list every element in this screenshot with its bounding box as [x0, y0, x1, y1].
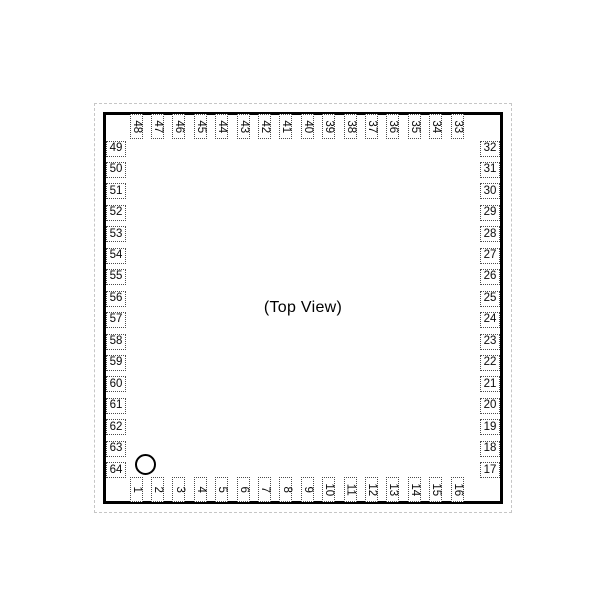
pin-number: 34: [430, 120, 442, 133]
pin-number: 32: [484, 143, 497, 155]
pin-box-10: 10: [322, 477, 335, 502]
pin-number: 52: [110, 207, 123, 219]
pin-box-61: 61: [106, 398, 126, 414]
pin-number: 36: [387, 120, 399, 133]
pin-box-4: 4: [194, 477, 207, 502]
pin-number: 35: [408, 120, 420, 133]
pin-box-35: 35: [408, 114, 421, 139]
pin-number: 15: [430, 483, 442, 496]
pin-number: 23: [484, 336, 497, 348]
pin-box-5: 5: [215, 477, 228, 502]
pin-number: 41: [280, 120, 292, 133]
pin-box-17: 17: [480, 462, 500, 478]
pin-box-30: 30: [480, 183, 500, 199]
pin-box-16: 16: [451, 477, 464, 502]
pin-number: 37: [366, 120, 378, 133]
pin-box-1: 1: [130, 477, 143, 502]
pin-number: 56: [110, 293, 123, 305]
pin-number: 24: [484, 314, 497, 326]
pin-box-7: 7: [258, 477, 271, 502]
pin-number: 9: [301, 486, 313, 492]
pin-box-50: 50: [106, 162, 126, 178]
pin-number: 17: [484, 465, 497, 477]
pin-box-25: 25: [480, 291, 500, 307]
pin-box-27: 27: [480, 248, 500, 264]
pin-number: 39: [323, 120, 335, 133]
pin-number: 8: [280, 486, 292, 492]
pin-number: 48: [130, 120, 142, 133]
pin-box-51: 51: [106, 183, 126, 199]
pin-number: 42: [259, 120, 271, 133]
pin-number: 61: [110, 400, 123, 412]
pin-number: 47: [152, 120, 164, 133]
pin-number: 26: [484, 271, 497, 283]
pin-number: 5: [216, 486, 228, 492]
pin-box-45: 45: [194, 114, 207, 139]
pin-box-18: 18: [480, 441, 500, 457]
pin-number: 54: [110, 250, 123, 262]
pin-box-12: 12: [365, 477, 378, 502]
pin-number: 16: [451, 483, 463, 496]
pin-number: 1: [130, 486, 142, 492]
pin-box-11: 11: [344, 477, 357, 502]
pin-number: 3: [173, 486, 185, 492]
pin-box-38: 38: [344, 114, 357, 139]
pin-box-49: 49: [106, 141, 126, 157]
pin-box-36: 36: [386, 114, 399, 139]
pin-number: 31: [484, 164, 497, 176]
pin-box-47: 47: [151, 114, 164, 139]
pin-box-24: 24: [480, 312, 500, 328]
chip-pinout-diagram: (Top View) 48474645444342414039383736353…: [0, 0, 600, 600]
top-view-label: (Top View): [103, 299, 503, 317]
pin-number: 18: [484, 443, 497, 455]
pin-box-41: 41: [279, 114, 292, 139]
pin-box-26: 26: [480, 269, 500, 285]
pin-box-19: 19: [480, 419, 500, 435]
pin-number: 59: [110, 357, 123, 369]
pin-box-42: 42: [258, 114, 271, 139]
pin-box-15: 15: [429, 477, 442, 502]
pin-number: 63: [110, 443, 123, 455]
pin-box-53: 53: [106, 226, 126, 242]
pin-box-57: 57: [106, 312, 126, 328]
pin-number: 60: [110, 379, 123, 391]
pin-number: 45: [194, 120, 206, 133]
pin-box-48: 48: [130, 114, 143, 139]
pin-number: 33: [451, 120, 463, 133]
pin-box-33: 33: [451, 114, 464, 139]
pin-number: 62: [110, 422, 123, 434]
pin-box-39: 39: [322, 114, 335, 139]
pin-box-20: 20: [480, 398, 500, 414]
pin-box-6: 6: [237, 477, 250, 502]
pin-number: 64: [110, 465, 123, 477]
pin-box-22: 22: [480, 355, 500, 371]
pin-number: 40: [301, 120, 313, 133]
pin-number: 28: [484, 229, 497, 241]
pin-number: 51: [110, 186, 123, 198]
pin-number: 19: [484, 422, 497, 434]
pin-box-52: 52: [106, 205, 126, 221]
pin-box-34: 34: [429, 114, 442, 139]
pin1-indicator-circle: [135, 454, 156, 475]
pin-box-40: 40: [301, 114, 314, 139]
pin-box-31: 31: [480, 162, 500, 178]
pin-number: 55: [110, 271, 123, 283]
pin-number: 13: [387, 483, 399, 496]
pin-box-58: 58: [106, 334, 126, 350]
pin-box-23: 23: [480, 334, 500, 350]
pin-box-9: 9: [301, 477, 314, 502]
pin-number: 10: [323, 483, 335, 496]
pin-box-63: 63: [106, 441, 126, 457]
pin-box-44: 44: [215, 114, 228, 139]
pin-box-56: 56: [106, 291, 126, 307]
pin-box-32: 32: [480, 141, 500, 157]
pin-box-14: 14: [408, 477, 421, 502]
pin-box-64: 64: [106, 462, 126, 478]
pin-box-54: 54: [106, 248, 126, 264]
pin-number: 44: [216, 120, 228, 133]
pin-box-2: 2: [151, 477, 164, 502]
pin-box-43: 43: [237, 114, 250, 139]
pin-box-29: 29: [480, 205, 500, 221]
pin-box-60: 60: [106, 376, 126, 392]
pin-number: 43: [237, 120, 249, 133]
pin-number: 29: [484, 207, 497, 219]
pin-box-55: 55: [106, 269, 126, 285]
pin-box-21: 21: [480, 376, 500, 392]
pin-box-62: 62: [106, 419, 126, 435]
pin-number: 27: [484, 250, 497, 262]
pin-number: 49: [110, 143, 123, 155]
pin-number: 11: [344, 484, 356, 496]
pin-box-13: 13: [386, 477, 399, 502]
pin-box-3: 3: [172, 477, 185, 502]
pin-number: 22: [484, 357, 497, 369]
pin-number: 58: [110, 336, 123, 348]
pin-number: 14: [408, 483, 420, 496]
pin-number: 57: [110, 314, 123, 326]
pin-number: 30: [484, 186, 497, 198]
pin-box-46: 46: [172, 114, 185, 139]
pin-number: 21: [484, 379, 497, 391]
pin-box-8: 8: [279, 477, 292, 502]
pin-box-28: 28: [480, 226, 500, 242]
pin-box-37: 37: [365, 114, 378, 139]
pin-number: 6: [237, 486, 249, 492]
pin-number: 50: [110, 164, 123, 176]
pin-number: 4: [194, 486, 206, 492]
pin-number: 25: [484, 293, 497, 305]
pin-number: 38: [344, 120, 356, 133]
pin-number: 53: [110, 229, 123, 241]
pin-number: 7: [259, 486, 271, 492]
pin-number: 12: [366, 483, 378, 496]
pin-box-59: 59: [106, 355, 126, 371]
pin-number: 46: [173, 120, 185, 133]
pin-number: 20: [484, 400, 497, 412]
pin-number: 2: [152, 486, 164, 492]
